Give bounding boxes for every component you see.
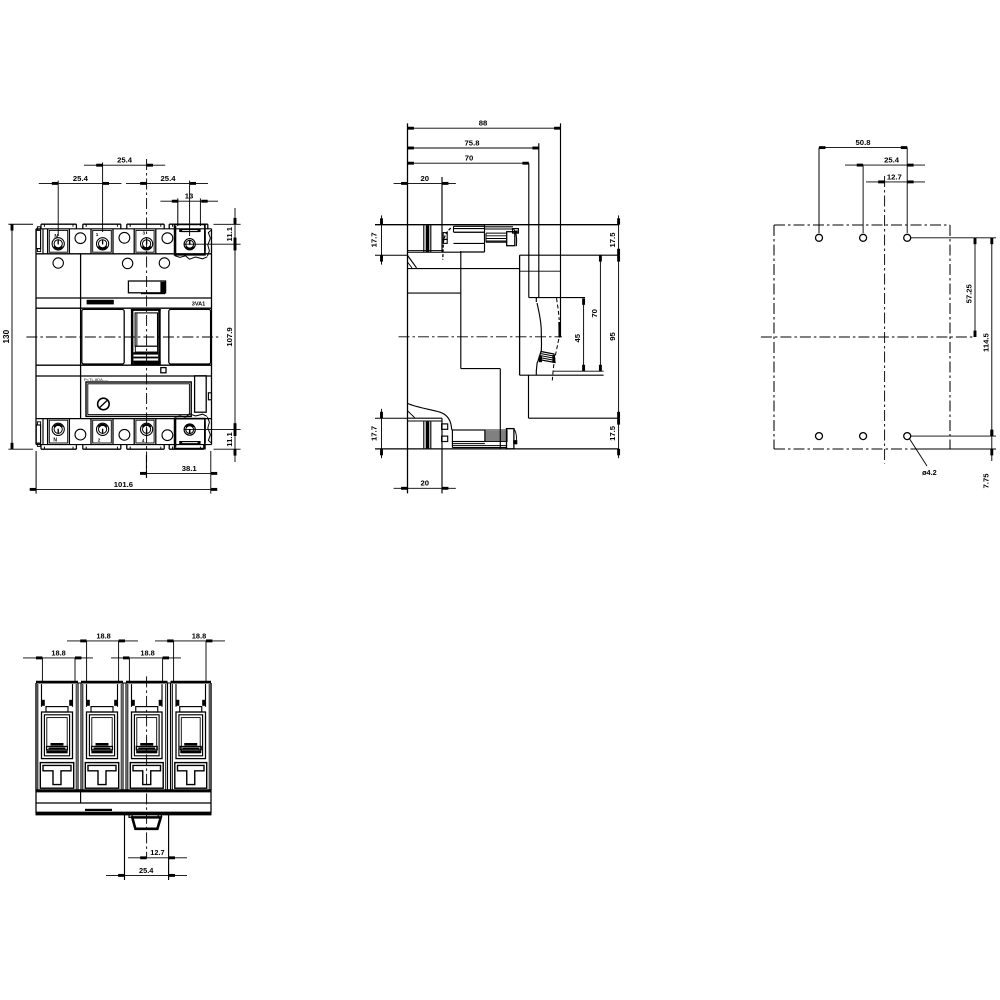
svg-text:18.8: 18.8 bbox=[140, 648, 154, 657]
svg-text:3: 3 bbox=[143, 231, 146, 236]
svg-text:12.7: 12.7 bbox=[150, 848, 164, 857]
svg-text:18.8: 18.8 bbox=[96, 631, 110, 640]
svg-text:13: 13 bbox=[185, 192, 194, 201]
svg-text:50.8: 50.8 bbox=[856, 138, 872, 147]
svg-text:1: 1 bbox=[96, 232, 99, 237]
svg-text:107.9: 107.9 bbox=[225, 327, 234, 346]
svg-text:17.5: 17.5 bbox=[608, 425, 617, 441]
svg-text:P<TL-6DA-—: P<TL-6DA-— bbox=[84, 377, 108, 382]
svg-text:2: 2 bbox=[98, 438, 101, 443]
svg-text:11.1: 11.1 bbox=[225, 432, 234, 447]
svg-text:20: 20 bbox=[421, 174, 430, 183]
svg-text:130: 130 bbox=[2, 329, 11, 343]
svg-text:75.8: 75.8 bbox=[465, 138, 481, 147]
svg-text:11.1: 11.1 bbox=[225, 226, 234, 241]
svg-text:ø4.2: ø4.2 bbox=[922, 468, 937, 477]
svg-text:45: 45 bbox=[573, 333, 582, 342]
svg-text:95: 95 bbox=[608, 332, 617, 341]
svg-text:25.4: 25.4 bbox=[139, 866, 154, 875]
svg-text:88: 88 bbox=[479, 119, 488, 128]
svg-text:114.5: 114.5 bbox=[981, 332, 990, 352]
svg-text:25.4: 25.4 bbox=[73, 174, 89, 183]
svg-text:57.25: 57.25 bbox=[965, 283, 974, 303]
svg-text:7.75: 7.75 bbox=[981, 473, 990, 489]
svg-text:70: 70 bbox=[590, 309, 599, 318]
svg-text:12.7: 12.7 bbox=[887, 172, 902, 181]
svg-text:3VA1: 3VA1 bbox=[192, 301, 206, 307]
svg-text:4: 4 bbox=[142, 438, 145, 443]
svg-text:101.6: 101.6 bbox=[114, 480, 133, 489]
svg-text:18.8: 18.8 bbox=[192, 631, 206, 640]
svg-text:17.5: 17.5 bbox=[608, 232, 617, 248]
svg-text:20: 20 bbox=[421, 479, 430, 488]
svg-text:70: 70 bbox=[465, 154, 474, 163]
svg-text:38.1: 38.1 bbox=[182, 464, 198, 473]
svg-text:25.4: 25.4 bbox=[161, 174, 177, 183]
svg-text:25.4: 25.4 bbox=[884, 156, 900, 165]
svg-text:18.8: 18.8 bbox=[51, 648, 65, 657]
svg-text:N: N bbox=[53, 438, 57, 444]
svg-text:25.4: 25.4 bbox=[117, 156, 133, 165]
svg-text:17.7: 17.7 bbox=[370, 232, 379, 247]
svg-text:17.7: 17.7 bbox=[370, 426, 379, 441]
